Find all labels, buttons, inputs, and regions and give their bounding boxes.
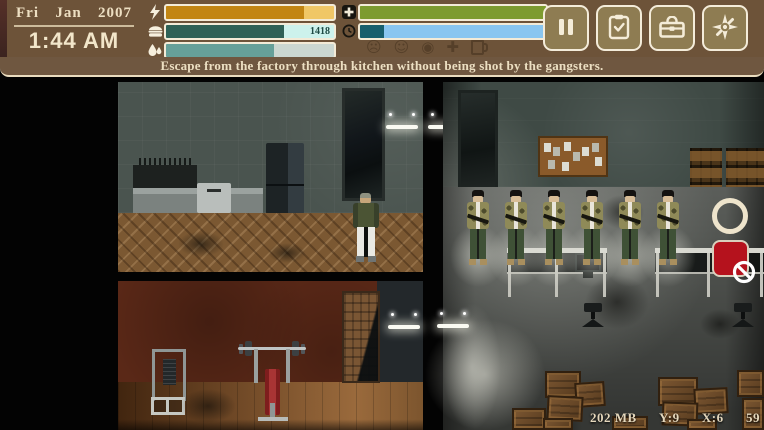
boots xyxy=(469,259,487,265)
gym-door[interactable] xyxy=(342,291,380,383)
energy-row xyxy=(146,4,336,20)
year-label: 2007 xyxy=(98,5,132,22)
hunger-bar: 1418 xyxy=(164,23,336,40)
wooden-crate[interactable] xyxy=(737,370,764,397)
player-shoes xyxy=(356,256,376,262)
gangster-npc[interactable] xyxy=(579,190,605,268)
date-row: Fri Jan 2007 xyxy=(12,5,136,22)
clock-icon xyxy=(340,24,358,38)
mug-icon xyxy=(471,40,484,55)
lightning-icon xyxy=(146,4,164,20)
pants xyxy=(622,229,638,259)
hud-bar: Fri Jan 2007 1:44 AM xyxy=(0,0,764,57)
compass-button[interactable] xyxy=(702,5,748,51)
date-divider xyxy=(14,25,134,27)
coordinate-y: Y:9 xyxy=(659,410,680,426)
drops-icon xyxy=(146,44,164,57)
debug-status-bar: 202 MB Y:9 X:6 59 xyxy=(590,410,760,426)
boots xyxy=(621,259,639,265)
hunger-value: 1418 xyxy=(310,25,330,38)
vitals-bars xyxy=(340,4,548,42)
energy-bar-fill xyxy=(166,6,304,19)
kitchen-doorway[interactable] xyxy=(342,88,385,201)
pinned-paper xyxy=(573,152,580,161)
barbell-bar xyxy=(238,347,306,350)
bench-upright xyxy=(286,349,290,383)
boots xyxy=(507,259,525,265)
pinned-paper xyxy=(592,143,599,152)
office-chair xyxy=(731,303,755,333)
pants xyxy=(508,229,524,259)
bulletin-board[interactable] xyxy=(538,136,608,177)
coordinate-x: X:6 xyxy=(702,410,724,426)
cross-icon: ✚ xyxy=(446,40,459,55)
boots xyxy=(545,259,563,265)
wooden-crate[interactable] xyxy=(543,418,573,430)
floor-stain xyxy=(268,243,306,263)
pause-button[interactable] xyxy=(543,5,589,51)
wooden-crate[interactable] xyxy=(512,408,546,430)
bottle-shelf[interactable] xyxy=(133,165,197,189)
thirst-bar xyxy=(164,42,336,59)
table-leg xyxy=(760,253,763,297)
pause-icon xyxy=(555,16,577,41)
thirst-row xyxy=(146,42,336,58)
circle-marker[interactable] xyxy=(712,198,748,234)
fluorescent-light xyxy=(437,312,469,334)
pants xyxy=(584,229,600,259)
player-pants xyxy=(357,227,375,257)
memory-usage: 202 MB xyxy=(590,410,637,426)
boots xyxy=(659,259,677,265)
pants xyxy=(546,229,562,259)
gangster-npc[interactable] xyxy=(503,190,529,268)
pinned-paper xyxy=(553,147,560,156)
pinned-paper xyxy=(564,142,571,151)
pinned-paper xyxy=(544,143,551,152)
smiley-face-icon: ☺ xyxy=(394,40,410,55)
hunger-bar-fill xyxy=(166,25,284,38)
sleep-bar-fill xyxy=(360,25,384,38)
hud-buttons xyxy=(543,5,748,51)
dishwasher[interactable] xyxy=(197,183,231,213)
weight-stack xyxy=(163,359,176,385)
eye-icon: ◉ xyxy=(421,40,434,55)
pinned-paper xyxy=(562,162,569,171)
bench-foot xyxy=(258,417,288,421)
clipboard-check-icon xyxy=(607,14,631,43)
player-jacket xyxy=(353,203,379,228)
game-scene xyxy=(0,79,764,430)
bench-upright xyxy=(254,349,258,383)
sleep-bar xyxy=(358,23,548,40)
clock-time: 1:44 AM xyxy=(12,28,136,54)
factory-doorway[interactable] xyxy=(458,90,498,200)
weekday-label: Fri xyxy=(16,5,39,22)
health-row xyxy=(340,4,548,20)
gangster-npc[interactable] xyxy=(655,190,681,268)
gangster-npc[interactable] xyxy=(541,190,567,268)
pants xyxy=(660,229,676,259)
office-chair xyxy=(581,303,605,333)
bench-press[interactable] xyxy=(238,343,306,429)
pants xyxy=(470,229,486,259)
health-bar xyxy=(358,4,548,21)
boots xyxy=(583,259,601,265)
compass-icon xyxy=(712,14,738,43)
gym-floor-stain xyxy=(180,389,236,423)
pinned-paper xyxy=(582,147,589,156)
month-label: Jan xyxy=(55,5,81,22)
fps-counter: 59 xyxy=(746,410,760,426)
floor-stain xyxy=(178,231,224,257)
plus-icon xyxy=(340,5,358,19)
needs-bars: 1418 xyxy=(146,4,336,61)
status-effect-icons: ☹ ☺ ◉ ✚ xyxy=(366,40,484,55)
forbidden-button[interactable] xyxy=(712,240,749,277)
gangster-npc[interactable] xyxy=(617,190,643,268)
objective-banner: Escape from the factory through kitchen … xyxy=(0,57,764,77)
game-screen: Fri Jan 2007 1:44 AM xyxy=(0,0,764,430)
inventory-button[interactable] xyxy=(649,5,695,51)
hunger-row: 1418 xyxy=(146,23,336,39)
fluorescent-light xyxy=(388,313,420,335)
fridge[interactable] xyxy=(266,143,304,214)
journal-button[interactable] xyxy=(596,5,642,51)
burger-icon xyxy=(146,26,164,37)
sleep-row xyxy=(340,23,548,39)
gangster-npc[interactable] xyxy=(465,190,491,268)
pinned-paper xyxy=(595,157,602,166)
pinned-paper xyxy=(548,160,555,169)
energy-bar xyxy=(164,4,336,21)
health-bar-fill xyxy=(360,6,546,19)
player-character[interactable] xyxy=(349,193,383,263)
dizzy-face-icon: ☹ xyxy=(366,40,382,55)
fluorescent-light xyxy=(386,113,418,135)
table-leg xyxy=(707,253,710,297)
thirst-bar-fill xyxy=(166,44,274,57)
toolbox-icon xyxy=(659,16,685,41)
date-time-panel: Fri Jan 2007 1:44 AM xyxy=(12,5,136,54)
